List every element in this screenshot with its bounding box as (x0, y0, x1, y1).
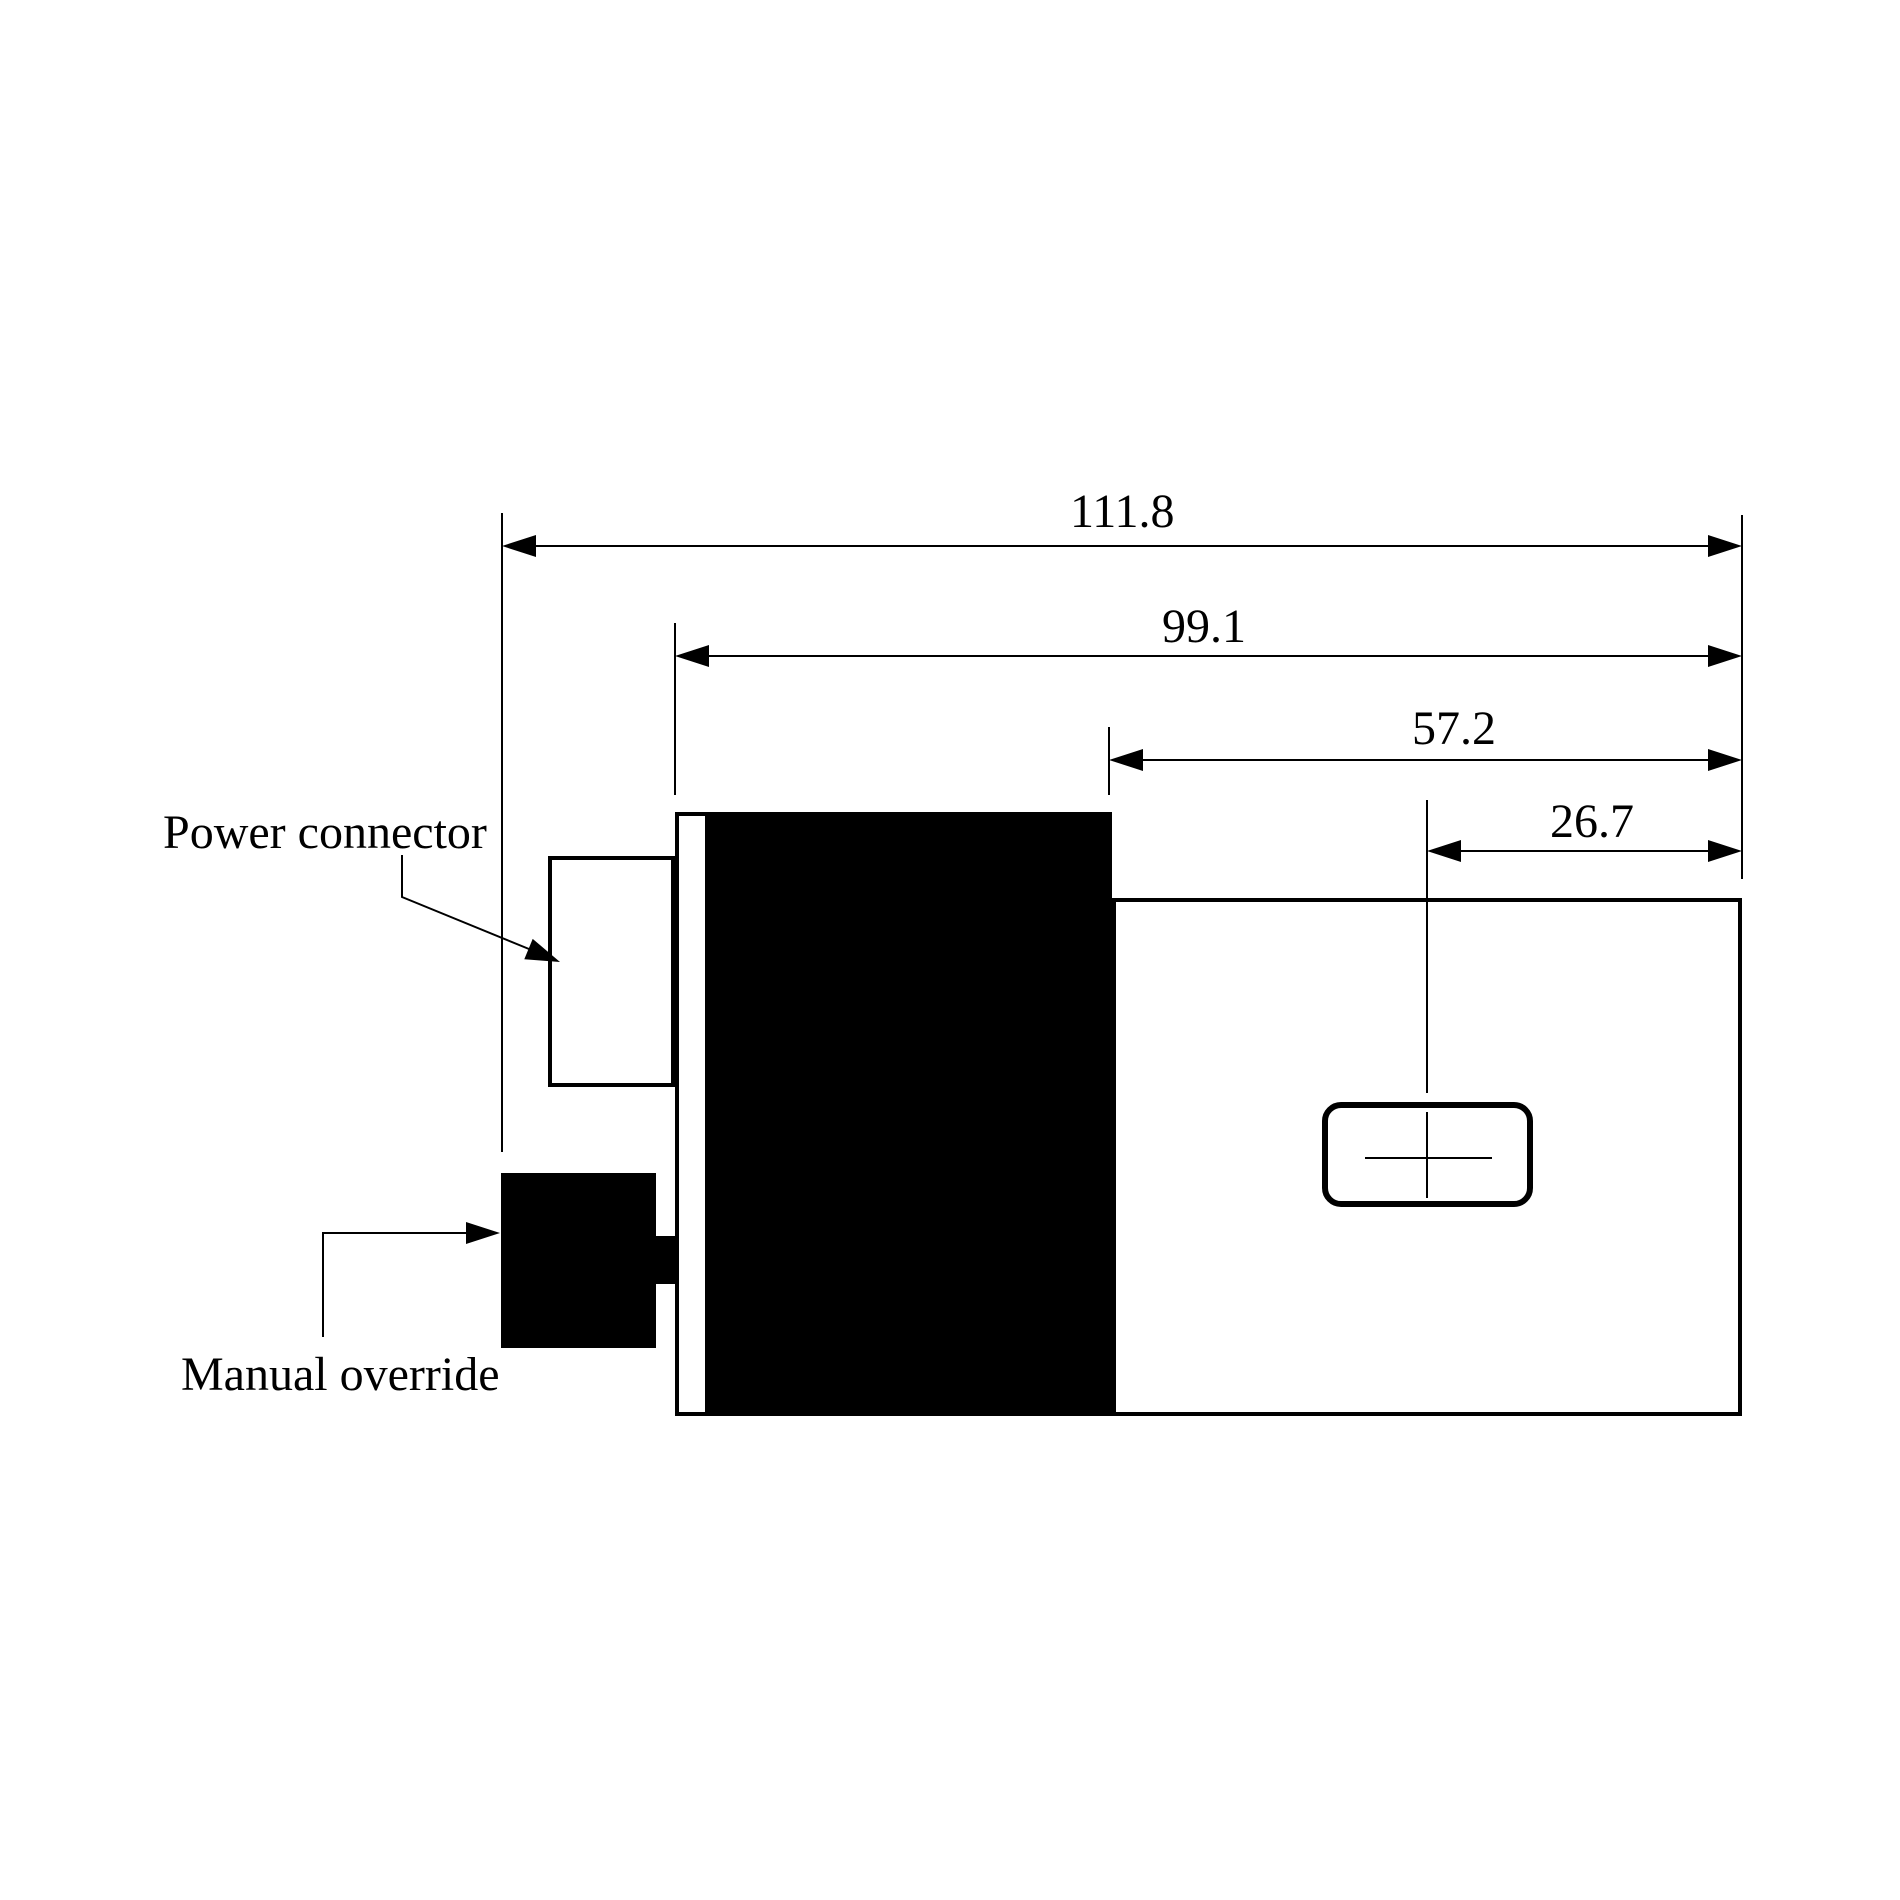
arrowhead-right-icon (1708, 749, 1742, 771)
arrowhead-right-icon (1708, 535, 1742, 557)
dimension-overall-length: 111.8 (502, 485, 1742, 557)
dimension-value-overall-length: 111.8 (1070, 485, 1174, 538)
arrowhead-left-icon (1427, 840, 1461, 862)
manual-override-label: Manual override (181, 1348, 500, 1401)
manual-override-stem (656, 1236, 678, 1284)
dimension-value-body-length: 99.1 (1162, 600, 1246, 653)
dimension-housing-length: 57.2 (1109, 702, 1742, 771)
arrowhead-right-icon (1708, 840, 1742, 862)
leader-arrowhead-icon (466, 1222, 500, 1244)
dimension-port-offset: 26.7 (1427, 795, 1742, 862)
motor-body (706, 812, 1112, 1416)
arrowhead-right-icon (1708, 645, 1742, 667)
arrowhead-left-icon (502, 535, 536, 557)
dimension-value-housing-length: 57.2 (1412, 702, 1496, 755)
dimension-drawing-svg: 111.8 99.1 57.2 26.7 Power connector (0, 0, 1900, 1900)
manual-override-knob (501, 1173, 656, 1348)
drawing-canvas: 111.8 99.1 57.2 26.7 Power connector (0, 0, 1900, 1900)
manual-override-leader-line (323, 1233, 468, 1337)
actuator-assembly (501, 812, 1740, 1416)
dimension-value-port-offset: 26.7 (1550, 795, 1634, 848)
power-connector-box (550, 858, 673, 1085)
power-connector-leader-line (402, 855, 529, 949)
dimension-body-length: 99.1 (675, 600, 1742, 667)
power-connector-label: Power connector (163, 806, 487, 859)
callout-manual-override: Manual override (181, 1222, 500, 1401)
arrowhead-left-icon (675, 645, 709, 667)
callout-power-connector: Power connector (163, 806, 560, 962)
arrowhead-left-icon (1109, 749, 1143, 771)
mounting-strip (677, 814, 707, 1414)
